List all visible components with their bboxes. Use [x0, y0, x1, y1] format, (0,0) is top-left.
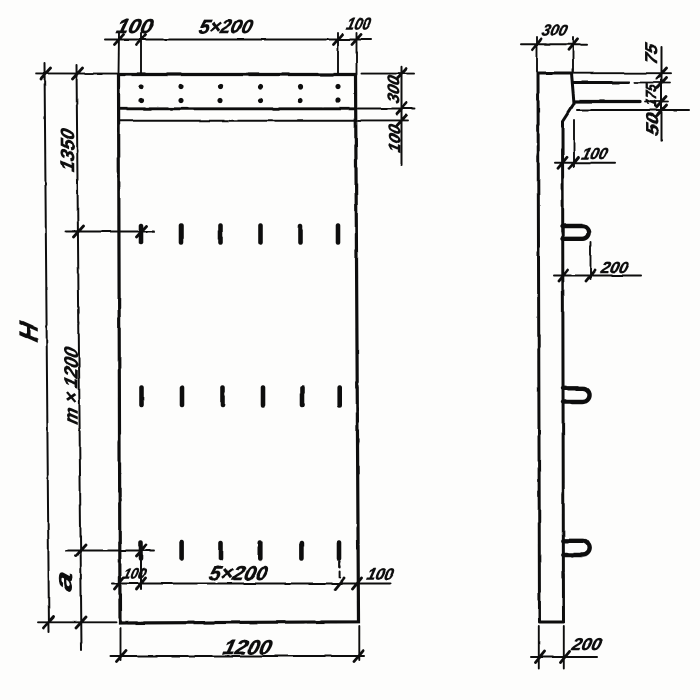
svg-text:300: 300 [540, 22, 569, 40]
svg-text:100: 100 [365, 566, 395, 584]
svg-text:1200: 1200 [221, 637, 275, 659]
svg-text:200: 200 [598, 259, 630, 277]
svg-text:m × 1200: m × 1200 [62, 345, 83, 426]
svg-text:100: 100 [385, 122, 404, 154]
svg-text:100: 100 [114, 16, 156, 38]
svg-text:5×200: 5×200 [197, 17, 255, 38]
svg-text:5×200: 5×200 [207, 563, 271, 585]
svg-text:100: 100 [580, 145, 610, 163]
svg-text:1350: 1350 [58, 126, 79, 173]
svg-text:200: 200 [569, 634, 604, 654]
svg-text:300: 300 [384, 73, 403, 105]
svg-text:175: 175 [644, 82, 661, 108]
